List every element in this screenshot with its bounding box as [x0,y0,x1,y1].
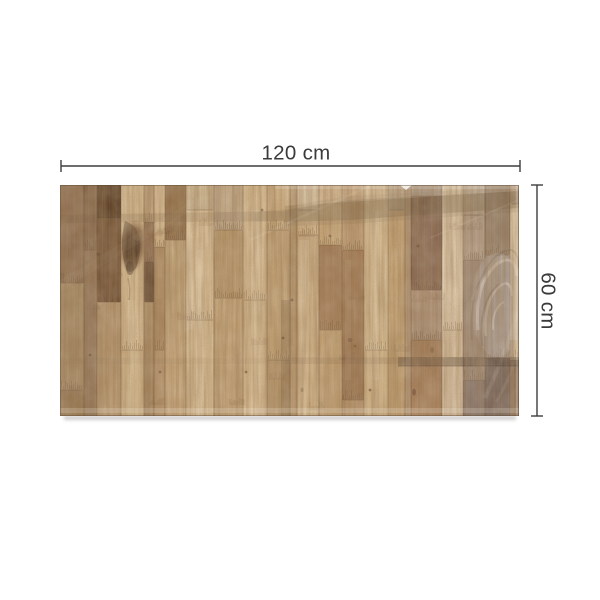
svg-text:120 cm: 120 cm [261,142,330,165]
svg-text:60 cm: 60 cm [537,272,560,329]
